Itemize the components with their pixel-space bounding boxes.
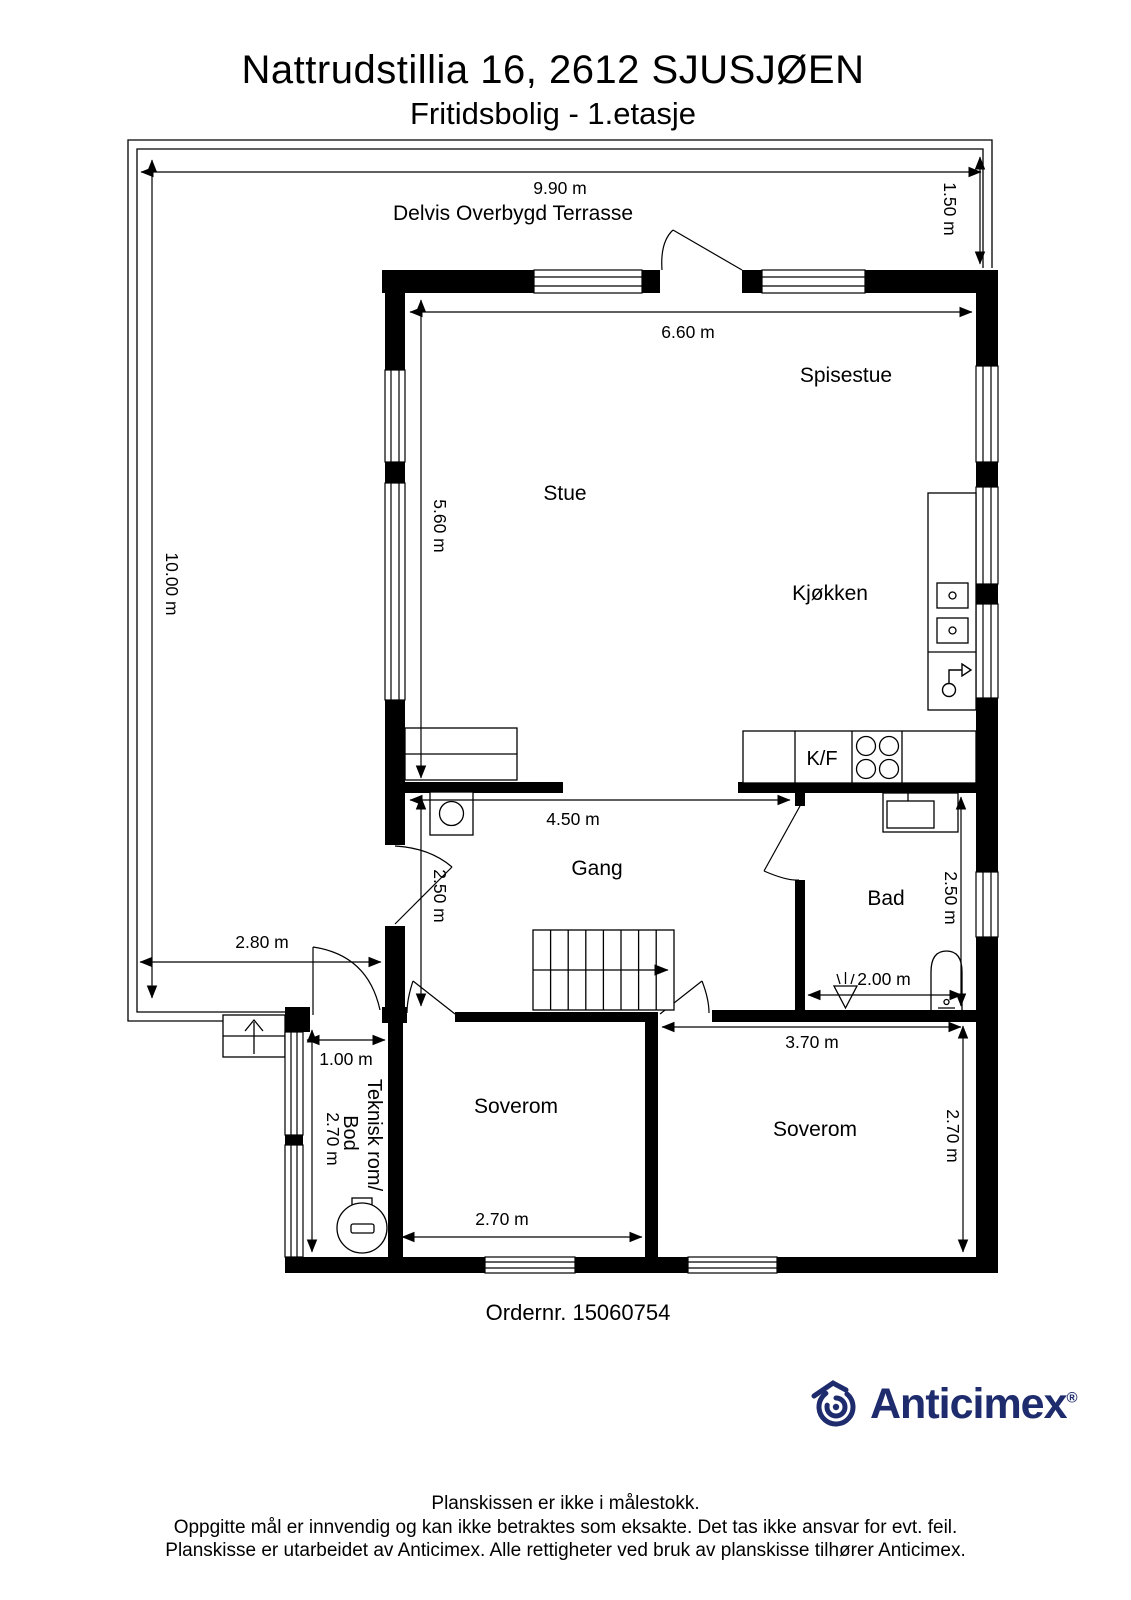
room-label-spisestue: Spisestue xyxy=(800,364,892,387)
shower-icon xyxy=(834,972,857,1008)
dim-bad-height: 2.50 m xyxy=(941,871,961,925)
dim-living-width: 6.60 m xyxy=(661,322,715,342)
room-label-teknisk-1: Teknisk rom/ xyxy=(363,1079,385,1192)
room-label-soverom-right: Soverom xyxy=(773,1118,857,1141)
label-kf: K/F xyxy=(806,748,837,770)
floor-plan-drawing: Delvis Overbygd Terrasse Stue Spisestue … xyxy=(0,0,1131,1600)
teknisk-door xyxy=(313,947,380,1015)
room-label-bad: Bad xyxy=(867,887,904,910)
plan-labels: Delvis Overbygd Terrasse Stue Spisestue … xyxy=(162,178,963,1229)
registered-mark: ® xyxy=(1067,1389,1077,1406)
kitchen-counter-right xyxy=(928,493,976,710)
footer-line-2: Oppgitte mål er innvendig og kan ikke be… xyxy=(0,1516,1131,1540)
bad-door xyxy=(764,806,800,880)
terrace-label: Delvis Overbygd Terrasse xyxy=(393,202,633,225)
anticimex-logo-text: Anticimex® xyxy=(870,1380,1077,1429)
terrace-door xyxy=(662,230,742,270)
dim-bad-width: 2.00 m xyxy=(857,969,911,989)
room-label-kjokken: Kjøkken xyxy=(792,582,868,605)
footer-line-3: Planskisse er utarbeidet av Anticimex. A… xyxy=(0,1539,1131,1563)
room-label-soverom-left: Soverom xyxy=(474,1095,558,1118)
anticimex-logo-icon xyxy=(810,1378,862,1430)
dimension-lines xyxy=(140,157,981,1252)
dim-terrace-height: 10.00 m xyxy=(162,552,182,615)
anticimex-logo: Anticimex® xyxy=(810,1378,1077,1430)
dim-gang-height: 2.50 m xyxy=(430,869,450,923)
footer-line-1: Planskissen er ikke i målestokk. xyxy=(0,1492,1131,1516)
water-heater-icon xyxy=(337,1198,387,1253)
soverom-left-door xyxy=(407,981,455,1014)
entry-steps xyxy=(223,1015,285,1057)
room-label-gang: Gang xyxy=(571,857,622,880)
dim-soverom-right-width: 3.70 m xyxy=(785,1032,839,1052)
dim-soverom-right-height: 2.70 m xyxy=(943,1109,963,1163)
washing-machine-icon xyxy=(430,792,473,835)
dim-teknisk-width: 1.00 m xyxy=(319,1049,373,1069)
order-number: Ordernr. 15060754 xyxy=(486,1300,671,1326)
floor-plan-page: Nattrudstillia 16, 2612 SJUSJØEN Fritids… xyxy=(0,0,1131,1600)
bathroom-sink-icon xyxy=(883,793,958,832)
dim-terrace-width: 9.90 m xyxy=(533,178,587,198)
room-label-stue: Stue xyxy=(543,482,586,505)
dim-teknisk-height: 2.70 m xyxy=(323,1112,343,1166)
dim-soverom-left-width: 2.70 m xyxy=(475,1209,529,1229)
footer-disclaimer: Planskissen er ikke i målestokk. Oppgitt… xyxy=(0,1492,1131,1563)
dim-gang-width: 4.50 m xyxy=(546,809,600,829)
dim-living-height: 5.60 m xyxy=(430,499,450,553)
bench xyxy=(405,728,517,780)
dim-terrace-right: 1.50 m xyxy=(940,182,960,236)
toilet-icon xyxy=(931,951,962,1012)
kitchen-counter-bottom xyxy=(743,731,976,783)
stairs xyxy=(533,930,674,1010)
dim-terrace-bottom: 2.80 m xyxy=(235,932,289,952)
